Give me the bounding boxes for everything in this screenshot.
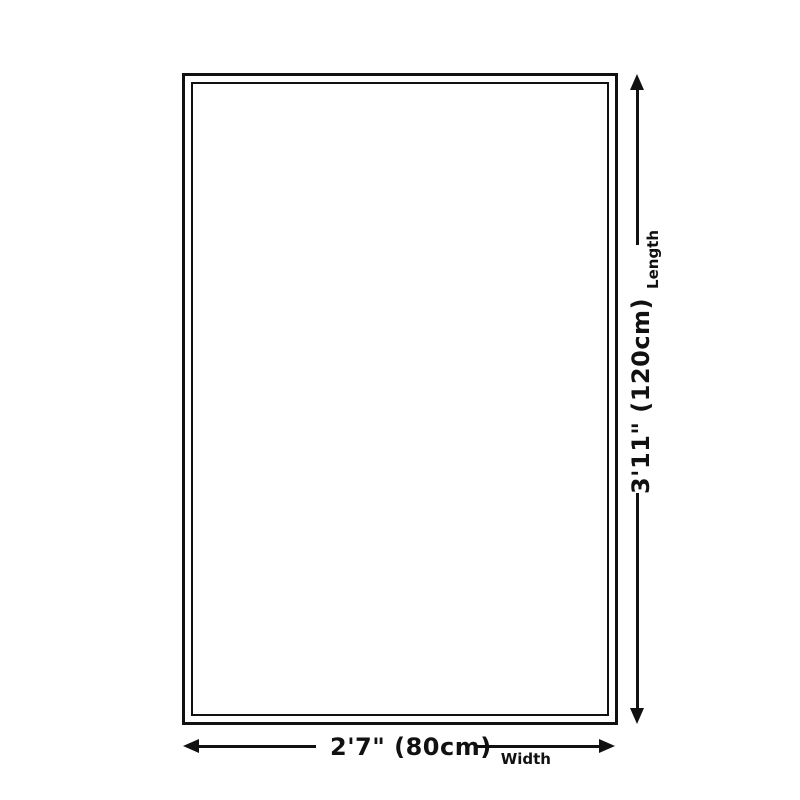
width-value: 2'7" (80cm)	[330, 735, 492, 759]
width-arrow-line-left	[197, 745, 316, 748]
rug-outline-inner	[191, 82, 609, 716]
length-value: 3'11" (120cm)	[629, 298, 653, 494]
length-arrow-line-top	[636, 88, 639, 245]
width-axis-label: Width	[501, 752, 551, 767]
length-arrow-line-bottom	[636, 493, 639, 709]
width-dimension-label: 2'7" (80cm) Width	[330, 735, 551, 759]
length-arrow-down-icon	[630, 708, 644, 724]
rug-outline-outer	[182, 73, 618, 725]
length-dimension-label: 3'11" (120cm) Length	[629, 230, 653, 494]
length-axis-label: Length	[646, 230, 661, 289]
width-arrow-right-icon	[599, 739, 615, 753]
rug-size-diagram: 3'11" (120cm) Length 2'7" (80cm) Width	[0, 0, 800, 800]
